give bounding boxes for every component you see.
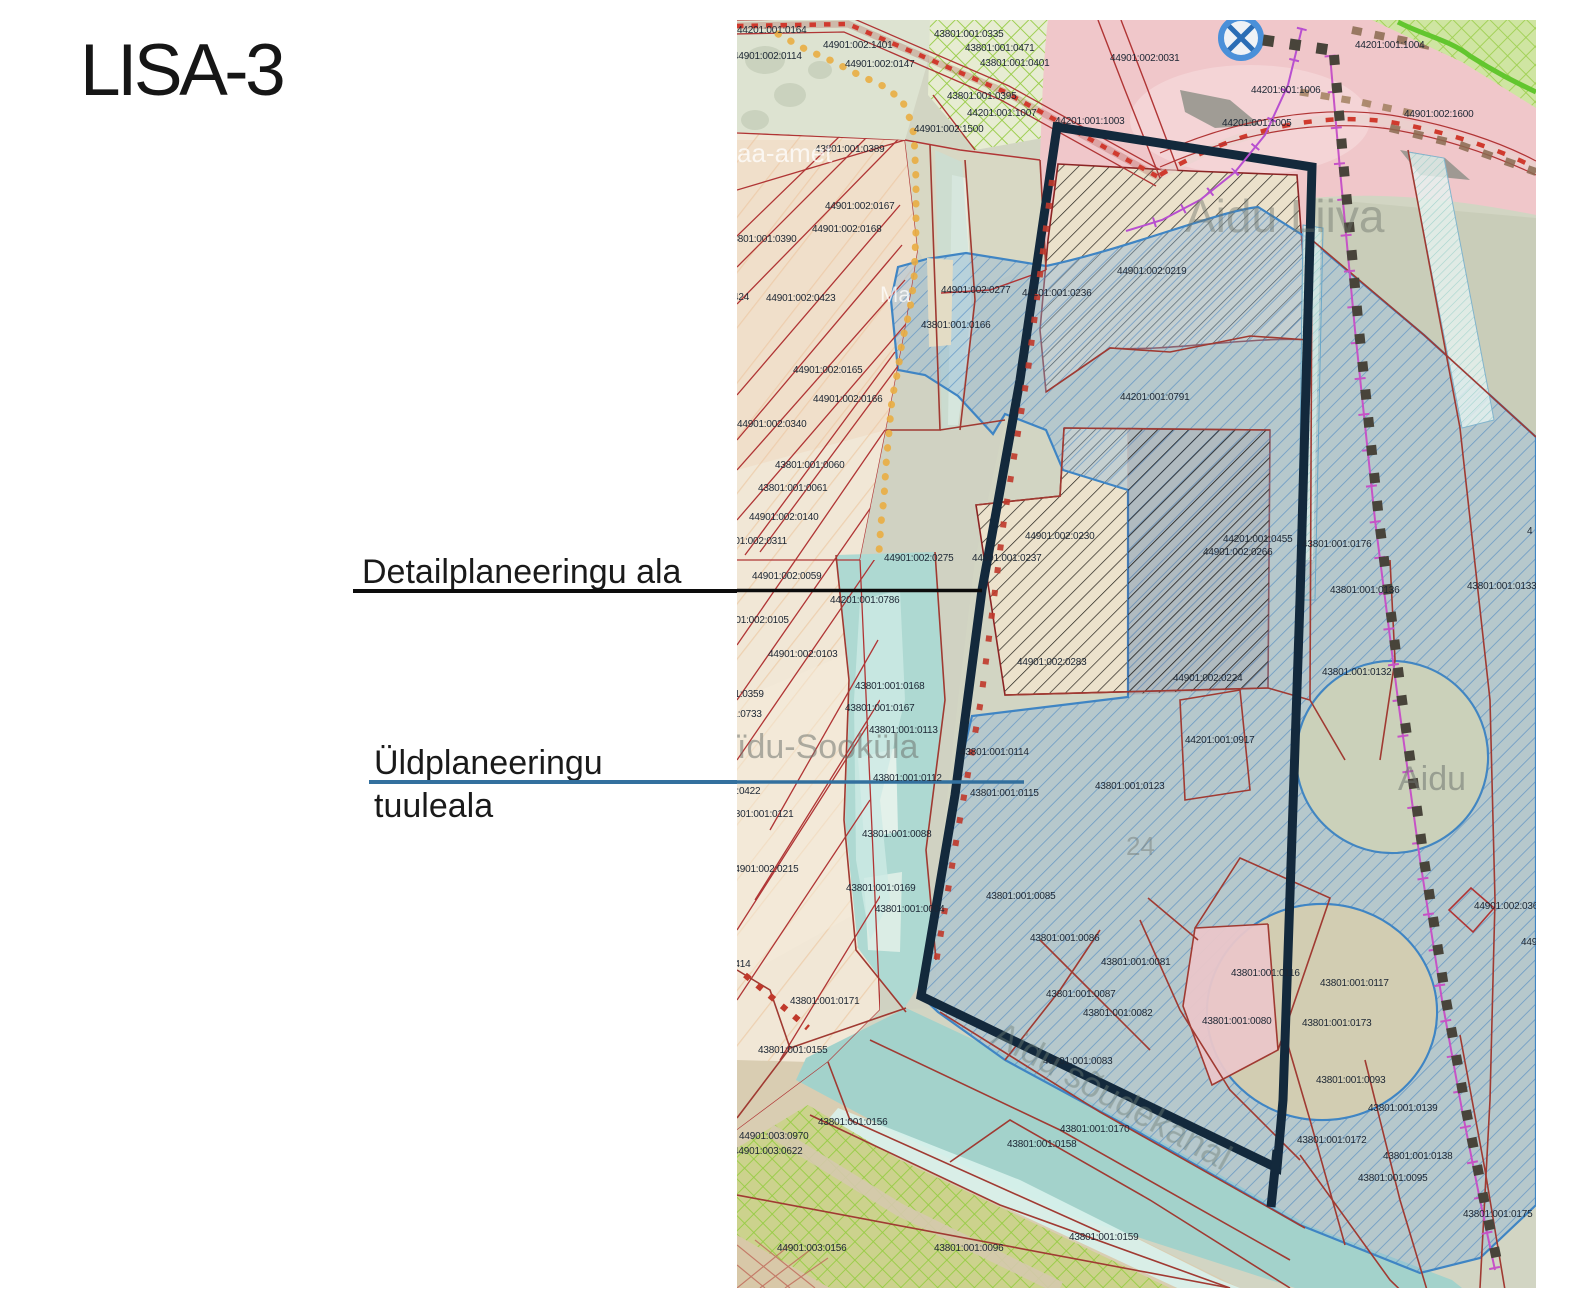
svg-text:43801:001:0168: 43801:001:0168 — [855, 681, 925, 692]
svg-text:44901:003:0156: 44901:003:0156 — [777, 1243, 847, 1254]
svg-text:43801:001:0081: 43801:001:0081 — [1101, 957, 1171, 968]
svg-text:44901:002:0423: 44901:002:0423 — [766, 293, 836, 304]
svg-text:44201:001:1005: 44201:001:1005 — [1222, 118, 1292, 129]
svg-text:44901:002:0165: 44901:002:0165 — [793, 365, 863, 376]
svg-text:43801:001:0155: 43801:001:0155 — [758, 1045, 828, 1056]
svg-text:43801:001:0139: 43801:001:0139 — [1368, 1103, 1438, 1114]
svg-text:44901:002:0168: 44901:002:0168 — [812, 224, 882, 235]
svg-text:43801:001:0138: 43801:001:0138 — [1383, 1151, 1453, 1162]
svg-text:43801:001:0471: 43801:001:0471 — [965, 43, 1035, 54]
svg-text:43801:001:0158: 43801:001:0158 — [1007, 1139, 1077, 1150]
svg-text:43801:001:0156: 43801:001:0156 — [818, 1117, 888, 1128]
svg-text:Ma: Ma — [880, 282, 911, 307]
svg-text:44901:002:0166: 44901:002:0166 — [813, 394, 883, 405]
svg-text:44901:002:0224: 44901:002:0224 — [1173, 673, 1243, 684]
svg-text:43801:001:0395: 43801:001:0395 — [947, 91, 1017, 102]
svg-text:ïdu-Sooküla: ïdu-Sooküla — [737, 728, 919, 766]
svg-text:43801:001:0159: 43801:001:0159 — [1069, 1232, 1139, 1243]
svg-text:aa-amet: aa-amet — [737, 138, 833, 168]
svg-text:43801:001:0401: 43801:001:0401 — [980, 58, 1050, 69]
svg-text:43801:001:0133: 43801:001:0133 — [1467, 581, 1536, 592]
svg-text:43801:001:0082: 43801:001:0082 — [1083, 1008, 1153, 1019]
svg-text:44901:002:036: 44901:002:036 — [1474, 901, 1536, 912]
svg-text:44901:002:0059: 44901:002:0059 — [752, 571, 822, 582]
svg-text:44901:002:0219: 44901:002:0219 — [1117, 266, 1187, 277]
svg-text:44201:001:0236: 44201:001:0236 — [1022, 288, 1092, 299]
svg-text:01:0359: 01:0359 — [737, 689, 764, 700]
svg-text:01:0733: 01:0733 — [737, 709, 762, 720]
svg-text:43801:001:0171: 43801:001:0171 — [790, 996, 860, 1007]
svg-text:24: 24 — [1126, 831, 1155, 861]
svg-text:43801:001:0136: 43801:001:0136 — [1330, 585, 1400, 596]
svg-text:44201:001:1004: 44201:001:1004 — [1355, 40, 1425, 51]
svg-text:43801:001:0173: 43801:001:0173 — [1302, 1018, 1372, 1029]
svg-text:44901:002:0140: 44901:002:0140 — [749, 512, 819, 523]
svg-text:43801:001:0132: 43801:001:0132 — [1322, 667, 1392, 678]
svg-text:44201:001:0164: 44201:001:0164 — [737, 25, 807, 36]
svg-text:43801:001:0112: 43801:001:0112 — [873, 773, 942, 784]
svg-text:44901:002:1401: 44901:002:1401 — [823, 40, 893, 51]
svg-text:901:002:0105: 901:002:0105 — [737, 615, 789, 626]
svg-text:901:002:0311: 901:002:0311 — [737, 536, 788, 547]
svg-text:43801:001:0390: 43801:001:0390 — [737, 234, 797, 245]
svg-text:Aidu Liiva: Aidu Liiva — [1185, 190, 1385, 242]
svg-text:43801:001:0116: 43801:001:0116 — [1231, 968, 1300, 979]
svg-text:44901:002:1600: 44901:002:1600 — [1404, 109, 1474, 120]
svg-text:43801:001:0167: 43801:001:0167 — [845, 703, 915, 714]
svg-text:44901:002:0114: 44901:002:0114 — [737, 51, 802, 62]
svg-text:44901:002:0215: 44901:002:0215 — [737, 864, 799, 875]
svg-text:44901:002:0340: 44901:002:0340 — [737, 419, 807, 430]
svg-text:44901:002:0277: 44901:002:0277 — [941, 285, 1011, 296]
svg-text:43801:001:0121: 43801:001:0121 — [737, 809, 794, 820]
svg-text:44901:003:0970: 44901:003:0970 — [739, 1131, 809, 1142]
svg-text:4: 4 — [1527, 526, 1533, 537]
svg-text:44901:002:0031: 44901:002:0031 — [1110, 53, 1180, 64]
svg-text:44201:001:1006: 44201:001:1006 — [1251, 85, 1321, 96]
svg-text:43801:001:0335: 43801:001:0335 — [934, 29, 1004, 40]
svg-text:43801:001:0080: 43801:001:0080 — [1202, 1016, 1272, 1027]
svg-text:43801:001:0172: 43801:001:0172 — [1297, 1135, 1367, 1146]
svg-text:43801:001:0170: 43801:001:0170 — [1060, 1124, 1130, 1135]
svg-text:44901:002:0147: 44901:002:0147 — [845, 59, 915, 70]
svg-text:44901:002:1500: 44901:002:1500 — [914, 124, 984, 135]
svg-text:43801:001:0114: 43801:001:0114 — [960, 747, 1029, 758]
svg-text:43801:001:0169: 43801:001:0169 — [846, 883, 916, 894]
svg-text:44201:001:1003: 44201:001:1003 — [1055, 116, 1125, 127]
svg-text:44901:002:0230: 44901:002:0230 — [1025, 531, 1095, 542]
svg-text:1:0422: 1:0422 — [737, 786, 761, 797]
svg-text:44901:002:0266: 44901:002:0266 — [1203, 547, 1273, 558]
svg-text:43801:001:0175: 43801:001:0175 — [1463, 1209, 1533, 1220]
svg-text:43801:001:0085: 43801:001:0085 — [986, 891, 1056, 902]
svg-text:43801:001:0061: 43801:001:0061 — [758, 483, 828, 494]
svg-text:44201:001:1007: 44201:001:1007 — [967, 108, 1037, 119]
svg-text:43801:001:0087: 43801:001:0087 — [1046, 989, 1116, 1000]
svg-text:44201:001:0791: 44201:001:0791 — [1120, 392, 1190, 403]
svg-text:43801:001:0088: 43801:001:0088 — [862, 829, 932, 840]
svg-text:43801:001:0123: 43801:001:0123 — [1095, 781, 1165, 792]
svg-text:43801:001:0093: 43801:001:0093 — [1316, 1075, 1386, 1086]
svg-text:43801:001:0176: 43801:001:0176 — [1302, 539, 1372, 550]
svg-text:43801:001:0115: 43801:001:0115 — [970, 788, 1039, 799]
svg-text:424: 424 — [737, 292, 750, 303]
svg-text:44201:001:0455: 44201:001:0455 — [1223, 534, 1293, 545]
svg-text:44901:002:0283: 44901:002:0283 — [1017, 657, 1087, 668]
svg-text:44201:001:0786: 44201:001:0786 — [830, 595, 900, 606]
svg-text:44901:002:0275: 44901:002:0275 — [884, 553, 954, 564]
svg-text:0414: 0414 — [737, 959, 751, 970]
svg-text:43801:001:0095: 43801:001:0095 — [1358, 1173, 1428, 1184]
svg-text:43801:001:0086: 43801:001:0086 — [1030, 933, 1100, 944]
svg-text:44901:001:0237: 44901:001:0237 — [972, 553, 1042, 564]
svg-text:Aidu: Aidu — [1398, 760, 1466, 798]
svg-text:43801:001:0117: 43801:001:0117 — [1320, 978, 1389, 989]
svg-text:43801:001:0096: 43801:001:0096 — [934, 1243, 1004, 1254]
svg-text:43801:001:0060: 43801:001:0060 — [775, 460, 845, 471]
svg-text:4490: 4490 — [1521, 937, 1536, 948]
svg-text:43801:001:0166: 43801:001:0166 — [921, 320, 991, 331]
svg-text:44901:002:0103: 44901:002:0103 — [768, 649, 838, 660]
svg-text:44201:001:0917: 44201:001:0917 — [1185, 735, 1255, 746]
svg-text:43801:001:0004: 43801:001:0004 — [875, 904, 945, 915]
svg-text:44901:003:0622: 44901:003:0622 — [737, 1146, 803, 1157]
svg-text:44901:002:0167: 44901:002:0167 — [825, 201, 895, 212]
